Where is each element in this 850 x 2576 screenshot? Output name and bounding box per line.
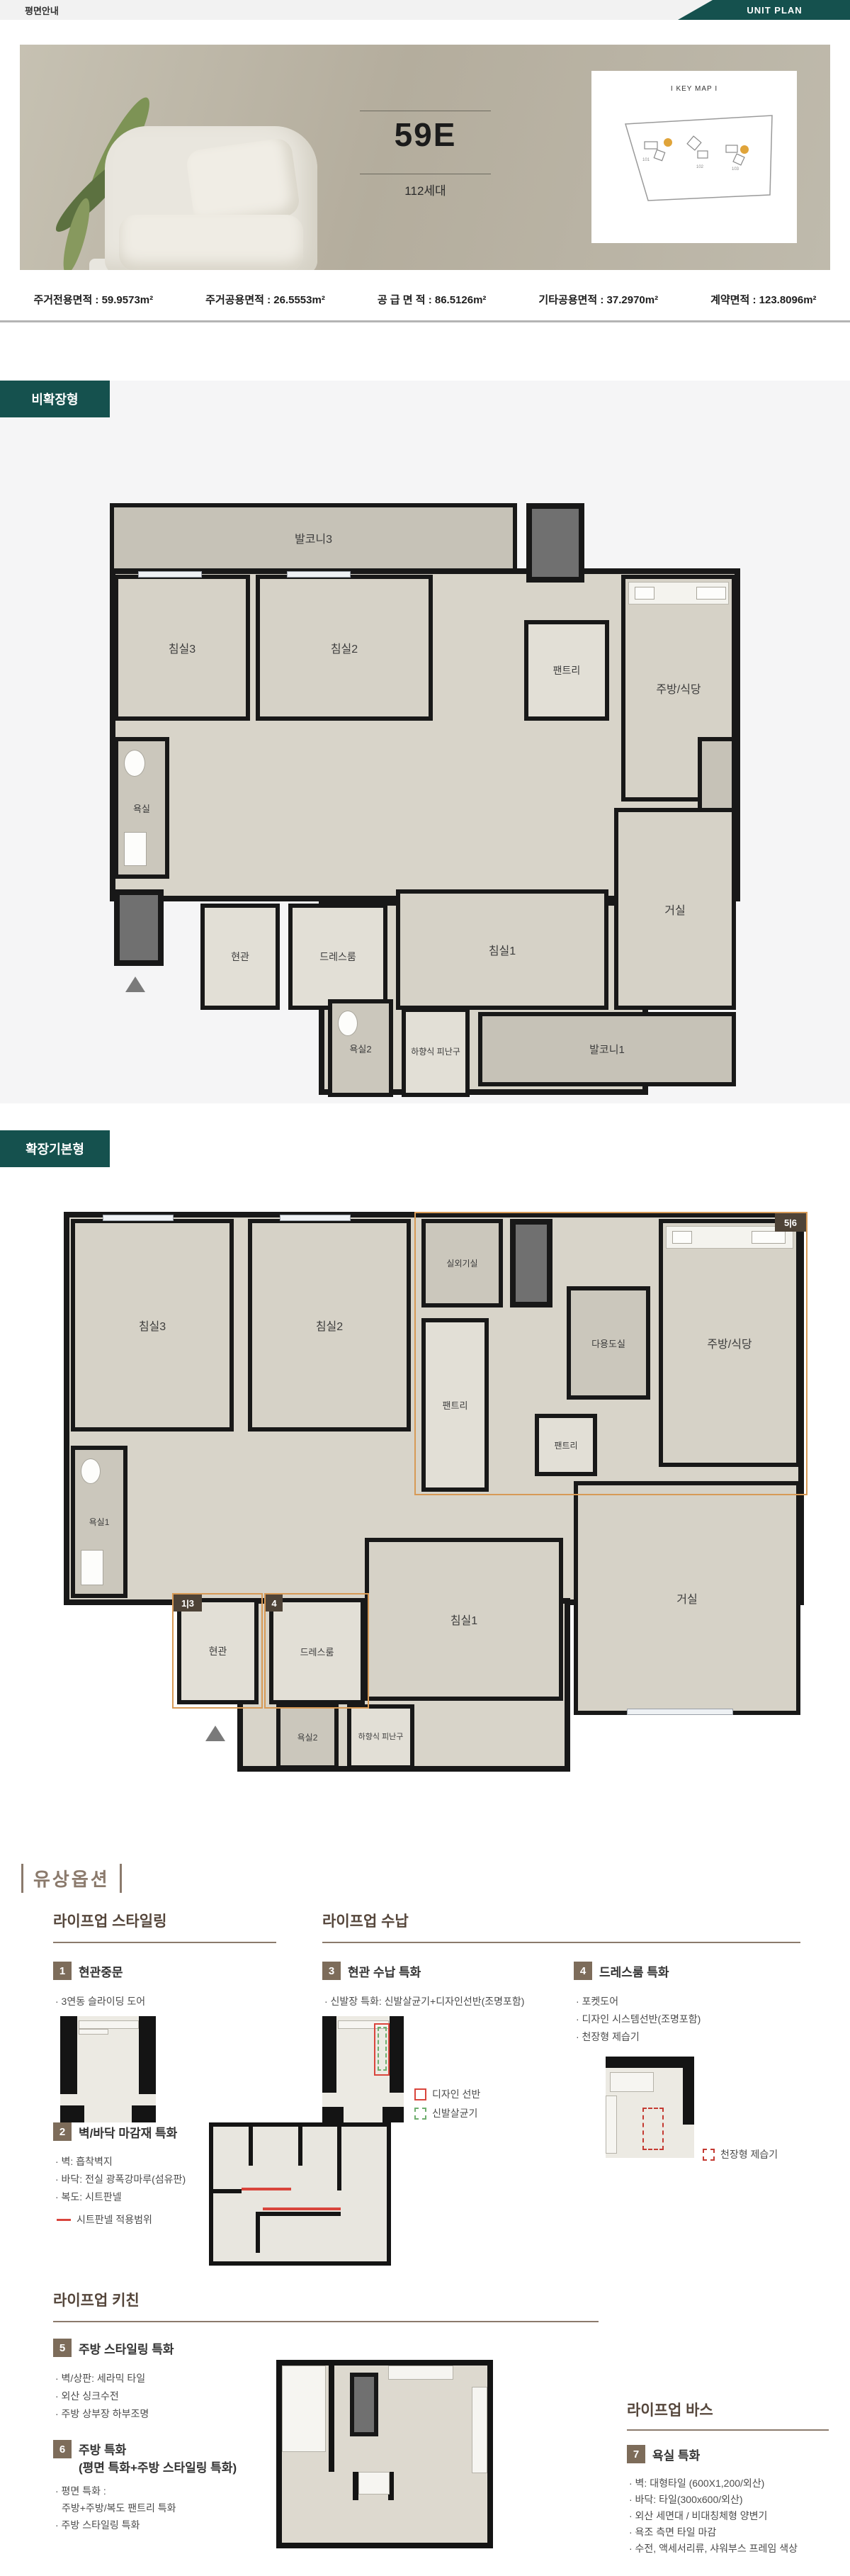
option-5-number: 5 bbox=[53, 2339, 72, 2357]
option-2-bullet: · 벽: 흡착벽지 bbox=[55, 2153, 113, 2171]
option-6-bullet: · 주방 스타일링 특화 bbox=[55, 2516, 140, 2534]
option-6-bullet: 주방+주방/복도 팬트리 특화 bbox=[55, 2499, 176, 2517]
option-5-title: 주방 스타일링 특화 bbox=[79, 2339, 174, 2357]
expanded-badge: 확장기본형 bbox=[0, 1130, 110, 1167]
plan1-room-bed1: 침실1 bbox=[396, 889, 608, 1010]
floorplan-nonexpanded: 발코니3 침실3 침실2 팬트리 주방/식당 욕실 발코니2 현관 드레스룸 침… bbox=[110, 503, 740, 1102]
floorplan-expanded: 침실3 침실2 실외기실 팬트리 다용도실 주방/식당 팬트리 욕실1 침실1 … bbox=[46, 1205, 804, 1782]
plan2-room-living: 거실 bbox=[574, 1481, 800, 1715]
unit-plan-page: 평면안내 UNIT PLAN 59E 112세대 I KEY MAP I bbox=[0, 0, 850, 2576]
armchair-seat bbox=[119, 215, 303, 270]
option-1-diagram bbox=[60, 2016, 156, 2122]
svg-text:102: 102 bbox=[696, 165, 704, 169]
svg-text:103: 103 bbox=[732, 167, 739, 171]
plan2-room-bed3: 침실3 bbox=[71, 1219, 234, 1432]
page-title: 평면안내 bbox=[25, 0, 59, 20]
plan2-option-marker-dressroom: 4 bbox=[266, 1594, 283, 1612]
plan2-option-marker-entry: 1|3 bbox=[174, 1594, 202, 1612]
option-2-number: 2 bbox=[53, 2122, 72, 2141]
option-6-bullet: · 평면 특화 : bbox=[55, 2482, 106, 2500]
option-2-diagram bbox=[209, 2122, 391, 2266]
option-4-bullet: · 디자인 시스템선반(조명포함) bbox=[576, 2010, 701, 2028]
plan2-option-marker-kitchen: 5|6 bbox=[775, 1213, 806, 1232]
option-7-bullet: · 수전, 액세서리류, 샤워부스 프레임 색상 bbox=[629, 2540, 798, 2558]
option-5-bullet: · 외산 싱크수전 bbox=[55, 2387, 119, 2405]
paid-options-title: 유상옵션 bbox=[21, 1864, 122, 1893]
plan2-room-escape: 하향식 피난구 bbox=[347, 1704, 414, 1770]
kitchen-header: 라이프업 키친 bbox=[53, 2289, 140, 2310]
plan2-room-bath2: 욕실2 bbox=[276, 1704, 339, 1770]
option-item-1: 1 현관중문 bbox=[53, 1962, 123, 1980]
households-count: 112세대 bbox=[360, 181, 491, 198]
bath-underline bbox=[627, 2429, 829, 2431]
plan1-room-pantry: 팬트리 bbox=[524, 620, 609, 721]
green-dashed-swatch bbox=[414, 2108, 426, 2120]
plan1-elevator-core bbox=[526, 503, 584, 583]
option-5-bullet: · 주방 상부장 하부조명 bbox=[55, 2405, 149, 2423]
option-1-title: 현관중문 bbox=[79, 1962, 123, 1980]
key-map-title: I KEY MAP I bbox=[591, 85, 797, 93]
key-map-illustration: 101 102 103 bbox=[606, 103, 783, 223]
plan2-room-bed1: 침실1 bbox=[365, 1538, 563, 1701]
area-other-common: 기타공용면적 : 37.2970m² bbox=[538, 292, 658, 307]
option-item-5: 5 주방 스타일링 특화 bbox=[53, 2339, 174, 2357]
option-7-bullet: · 외산 세면대 / 비대칭체형 양변기 bbox=[629, 2507, 767, 2525]
styling-underline bbox=[53, 1942, 276, 1943]
option-2-bullet: · 복도: 시트판넬 bbox=[55, 2188, 122, 2206]
storage-underline bbox=[322, 1942, 800, 1943]
plan1-room-bath: 욕실 bbox=[114, 737, 169, 879]
option-3-title: 현관 수납 특화 bbox=[348, 1962, 421, 1980]
plan1-window bbox=[287, 571, 351, 578]
plan1-room-dressroom: 드레스룸 bbox=[288, 904, 387, 1010]
nonexpanded-badge: 비확장형 bbox=[0, 381, 110, 417]
option-4-diagram bbox=[606, 2057, 694, 2158]
section-divider bbox=[0, 320, 850, 322]
area-common-residential: 주거공용면적 : 26.5553m² bbox=[205, 292, 325, 307]
option-1-number: 1 bbox=[53, 1962, 72, 1980]
unit-plan-ribbon: UNIT PLAN bbox=[678, 0, 850, 20]
plan1-room-escape: 하향식 피난구 bbox=[402, 1008, 470, 1097]
option-7-title: 욕실 특화 bbox=[652, 2446, 700, 2463]
plan1-kitchen-counter bbox=[628, 582, 729, 604]
unit-plan-ribbon-label: UNIT PLAN bbox=[678, 0, 850, 20]
red-square-swatch bbox=[414, 2088, 426, 2100]
plan1-room-bath2: 욕실2 bbox=[328, 999, 393, 1097]
option-7-bullet: · 벽: 대형타일 (600X1,200/외산) bbox=[629, 2475, 764, 2492]
option-4-bullet: · 천장형 제습기 bbox=[576, 2028, 640, 2046]
option-7-bullet: · 바닥: 타일(300x600/외산) bbox=[629, 2491, 743, 2509]
option-item-7: 7 욕실 특화 bbox=[627, 2445, 700, 2463]
red-line-swatch bbox=[57, 2219, 71, 2221]
option-4-title: 드레스룸 특화 bbox=[599, 1962, 669, 1980]
option-item-2: 2 벽/바닥 마감재 특화 bbox=[53, 2122, 177, 2141]
plan1-room-bed2: 침실2 bbox=[256, 575, 433, 721]
plan1-room-bed3: 침실3 bbox=[114, 575, 250, 721]
styling-header: 라이프업 스타일링 bbox=[53, 1910, 166, 1931]
option-3-diagram bbox=[322, 2016, 404, 2122]
plan1-room-entry: 현관 bbox=[200, 904, 280, 1010]
plan1-room-balcony1: 발코니1 bbox=[478, 1012, 736, 1086]
kitchen-underline bbox=[53, 2321, 599, 2322]
area-supply: 공 급 면 적 : 86.5126m² bbox=[378, 292, 487, 307]
plan2-entrance-marker bbox=[205, 1726, 225, 1741]
option-7-number: 7 bbox=[627, 2445, 645, 2463]
hero-banner: 59E 112세대 I KEY MAP I 101 102 103 bbox=[20, 45, 830, 270]
plan2-window bbox=[280, 1215, 351, 1221]
option-4-number: 4 bbox=[574, 1962, 592, 1980]
plan2-room-bath1: 욕실1 bbox=[71, 1446, 127, 1598]
plan2-option-zone-kitchen: 5|6 bbox=[414, 1212, 807, 1495]
option-3-legend-sterilizer: 신발살균기 bbox=[414, 2106, 477, 2120]
plan2-option-zone-entry: 1|3 bbox=[172, 1593, 263, 1709]
plan1-entrance-marker bbox=[125, 977, 145, 992]
option-2-title: 벽/바닥 마감재 특화 bbox=[79, 2123, 177, 2141]
option-6-number: 6 bbox=[53, 2440, 72, 2458]
plan2-room-bed2: 침실2 bbox=[248, 1219, 411, 1432]
area-info-bar: 주거전용면적 : 59.9573m² 주거공용면적 : 26.5553m² 공 … bbox=[0, 286, 850, 312]
plan2-option-zone-dressroom: 4 bbox=[264, 1593, 369, 1709]
option-item-3: 3 현관 수납 특화 bbox=[322, 1962, 421, 1980]
option-1-bullet: · 3연동 슬라이딩 도어 bbox=[55, 1993, 145, 2010]
svg-text:101: 101 bbox=[642, 158, 650, 162]
option-5-bullet: · 벽/상판: 세라믹 타일 bbox=[55, 2370, 145, 2387]
hero-divider-top bbox=[360, 111, 491, 111]
kitchen-diagram bbox=[276, 2360, 493, 2548]
option-4-legend-dehumidifier: 천장형 제습기 bbox=[703, 2147, 778, 2161]
plan2-window bbox=[103, 1215, 174, 1221]
area-exclusive: 주거전용면적 : 59.9573m² bbox=[33, 292, 153, 307]
option-item-6: 6 주방 특화 (평면 특화+주방 스타일링 특화) bbox=[53, 2440, 237, 2475]
option-3-bullet: · 신발장 특화: 신발살균기+디자인선반(조명포함) bbox=[324, 1993, 524, 2010]
unit-name: 59E bbox=[360, 116, 491, 154]
bath-header: 라이프업 바스 bbox=[627, 2399, 713, 2420]
option-2-legend: 시트판넬 적용범위 bbox=[57, 2212, 152, 2227]
plan1-room-balcony3: 발코니3 bbox=[110, 503, 517, 573]
plan1-window bbox=[138, 571, 202, 578]
top-bar: 평면안내 UNIT PLAN bbox=[0, 0, 850, 20]
plan1-stair-core bbox=[114, 889, 164, 966]
option-2-bullet: · 바닥: 전실 광폭강마루(섬유판) bbox=[55, 2171, 186, 2188]
option-3-number: 3 bbox=[322, 1962, 341, 1980]
key-map: I KEY MAP I 101 102 103 bbox=[591, 71, 797, 243]
plan1-room-living: 거실 bbox=[614, 808, 736, 1010]
area-contract: 계약면적 : 123.8096m² bbox=[710, 292, 816, 307]
plan2-window bbox=[627, 1709, 733, 1715]
hero-divider-bottom bbox=[360, 174, 491, 174]
red-dashed-swatch bbox=[703, 2149, 715, 2161]
option-4-bullet: · 포켓도어 bbox=[576, 1993, 618, 2010]
option-6-title: 주방 특화 bbox=[79, 2440, 237, 2458]
option-7-bullet: · 욕조 측면 타일 마감 bbox=[629, 2524, 716, 2541]
option-6-subtitle: (평면 특화+주방 스타일링 특화) bbox=[79, 2461, 237, 2475]
storage-header: 라이프업 수납 bbox=[322, 1910, 409, 1931]
option-item-4: 4 드레스룸 특화 bbox=[574, 1962, 669, 1980]
option-3-legend-shelf: 디자인 선반 bbox=[414, 2087, 480, 2101]
